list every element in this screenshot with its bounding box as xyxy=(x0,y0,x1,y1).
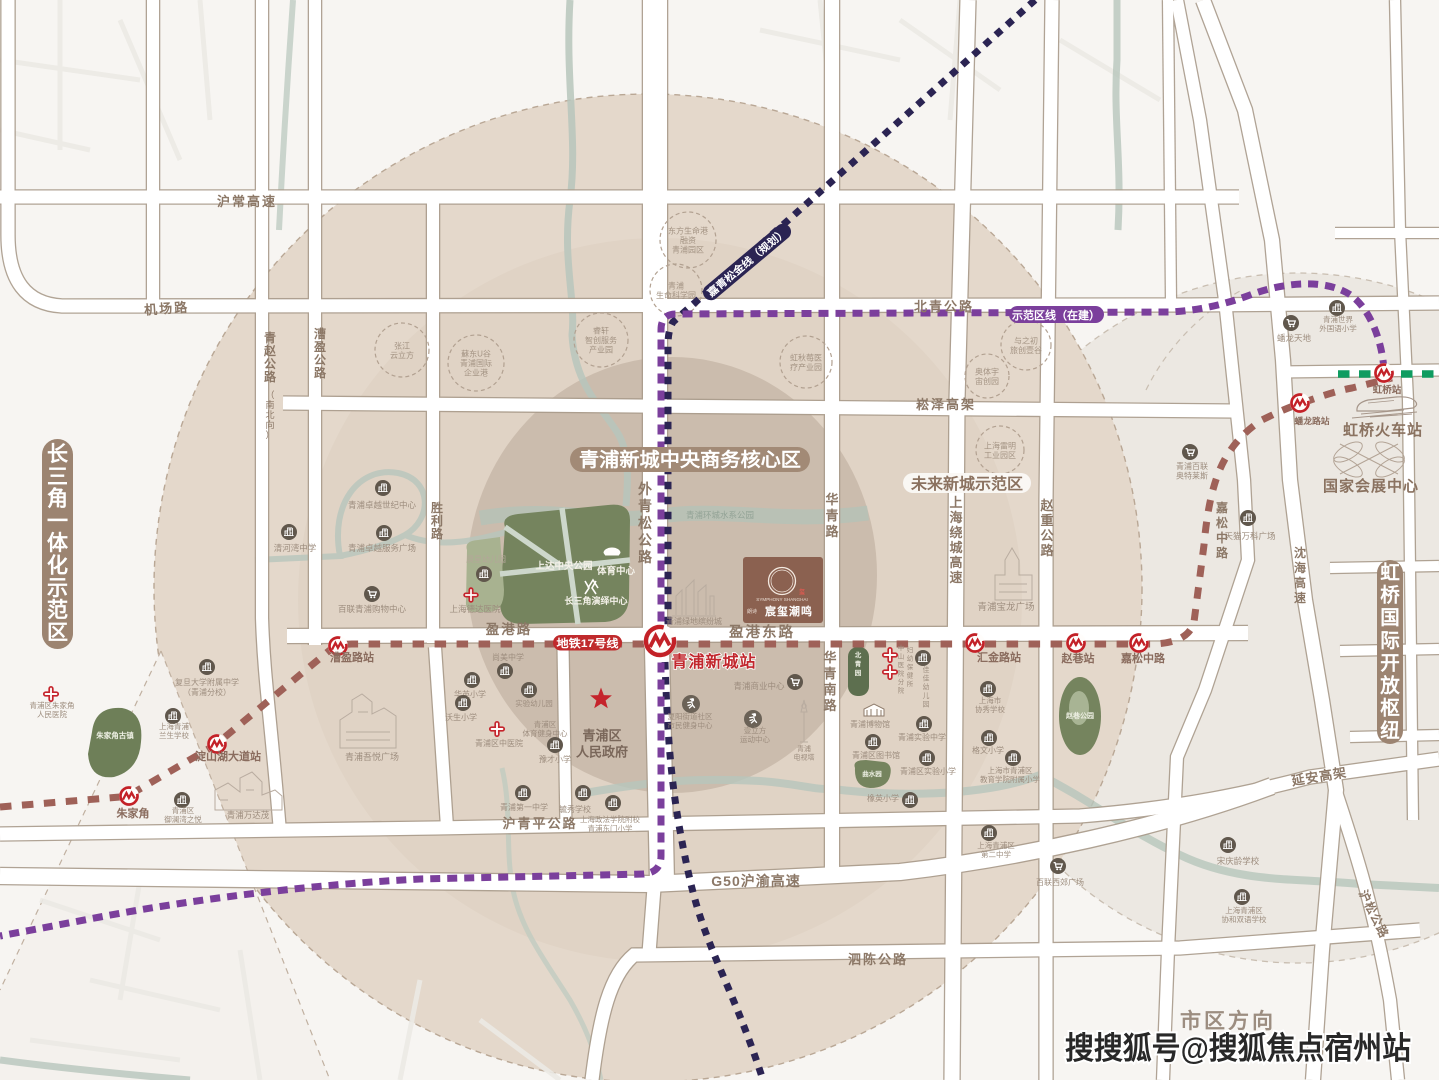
svg-text:睿轩: 睿轩 xyxy=(593,326,609,336)
svg-text:青浦区: 青浦区 xyxy=(534,719,557,729)
svg-text:青浦绿地缤纷城: 青浦绿地缤纷城 xyxy=(666,616,722,626)
svg-text:机场路: 机场路 xyxy=(144,299,190,317)
svg-text:SYMPHONY SHANGHAI: SYMPHONY SHANGHAI xyxy=(756,597,807,602)
svg-text:奥体宇: 奥体宇 xyxy=(975,366,999,376)
svg-text:青浦区: 青浦区 xyxy=(582,728,621,743)
svg-text:上海市青浦区: 上海市青浦区 xyxy=(988,765,1033,775)
svg-text:豫才小学: 豫才小学 xyxy=(539,754,571,764)
svg-text:重: 重 xyxy=(1040,513,1053,528)
svg-text:未来新城示范区: 未来新城示范区 xyxy=(910,474,1024,493)
svg-text:上达中央公园: 上达中央公园 xyxy=(535,560,592,572)
svg-text:青浦实验中学: 青浦实验中学 xyxy=(898,732,946,742)
svg-text:长: 长 xyxy=(47,443,69,466)
svg-text:御澜湾之悦: 御澜湾之悦 xyxy=(164,814,202,824)
svg-text:蟠龙天地: 蟠龙天地 xyxy=(1277,333,1312,343)
svg-text:一: 一 xyxy=(47,510,68,533)
svg-text:产业园: 产业园 xyxy=(589,345,613,355)
svg-text:青浦卓越服务广场: 青浦卓越服务广场 xyxy=(348,543,416,553)
svg-text:佳: 佳 xyxy=(923,674,930,683)
svg-text:区: 区 xyxy=(47,621,68,644)
svg-text:宸玺潮鸣: 宸玺潮鸣 xyxy=(765,604,813,618)
svg-text:青浦新城站: 青浦新城站 xyxy=(671,652,756,671)
svg-text:人民政府: 人民政府 xyxy=(576,745,628,760)
svg-text:体: 体 xyxy=(47,532,69,555)
svg-text:路: 路 xyxy=(431,526,444,541)
svg-text:青浦新城中央商务核心区: 青浦新城中央商务核心区 xyxy=(579,448,801,471)
svg-text:示: 示 xyxy=(47,577,68,600)
svg-text:体育健身中心: 体育健身中心 xyxy=(523,728,568,738)
svg-text:上海青浦区: 上海青浦区 xyxy=(1225,905,1263,915)
svg-text:外国语小学: 外国语小学 xyxy=(1319,323,1357,333)
svg-text:幼: 幼 xyxy=(907,654,914,663)
svg-text:疗产业园: 疗产业园 xyxy=(790,362,822,372)
svg-text:赵: 赵 xyxy=(1039,498,1054,513)
svg-text:佳: 佳 xyxy=(923,665,930,674)
svg-text:）: ） xyxy=(265,430,274,440)
svg-text:市区方向: 市区方向 xyxy=(1180,1009,1276,1033)
svg-text:盈: 盈 xyxy=(313,340,326,354)
svg-text:云立方: 云立方 xyxy=(390,350,414,360)
svg-text:保: 保 xyxy=(907,662,914,671)
svg-text:北青公路: 北青公路 xyxy=(914,299,974,314)
svg-text:协秀学校: 协秀学校 xyxy=(975,704,1005,714)
svg-text:路: 路 xyxy=(314,365,327,380)
svg-text:虹秋莓医: 虹秋莓医 xyxy=(790,352,822,362)
svg-text:青浦环城水系公园: 青浦环城水系公园 xyxy=(686,510,754,520)
svg-text:蟠龙路站: 蟠龙路站 xyxy=(1294,415,1329,426)
svg-text:橡英小学: 橡英小学 xyxy=(867,793,899,803)
svg-text:青浦万达茂: 青浦万达茂 xyxy=(227,810,270,820)
svg-text:工业园区: 工业园区 xyxy=(984,450,1016,460)
svg-text:玺: 玺 xyxy=(799,588,805,596)
svg-text:上海青浦区: 上海青浦区 xyxy=(977,840,1015,850)
svg-text:赵: 赵 xyxy=(263,343,277,358)
svg-text:院: 院 xyxy=(898,669,905,678)
svg-text:虹桥火车站: 虹桥火车站 xyxy=(1343,421,1423,439)
svg-text:晨星幼儿园: 晨星幼儿园 xyxy=(466,554,506,564)
svg-text:天猫万科广场: 天猫万科广场 xyxy=(1224,531,1275,541)
svg-text:公: 公 xyxy=(264,357,276,371)
svg-text:公: 公 xyxy=(638,532,652,548)
svg-text:纽: 纽 xyxy=(1380,719,1400,742)
svg-text:地铁17号线: 地铁17号线 xyxy=(557,636,619,650)
svg-text:张江: 张江 xyxy=(394,341,410,350)
svg-text:生命科学园: 生命科学园 xyxy=(656,290,696,300)
svg-text:青: 青 xyxy=(638,498,652,514)
svg-text:幼: 幼 xyxy=(923,682,930,691)
svg-text:儿: 儿 xyxy=(923,692,930,700)
svg-text:青浦区实验小学: 青浦区实验小学 xyxy=(900,766,956,776)
svg-text:南: 南 xyxy=(823,682,836,697)
svg-text:漕盈路站: 漕盈路站 xyxy=(330,650,374,664)
svg-text:健: 健 xyxy=(907,671,914,680)
svg-text:蘇东U谷: 蘇东U谷 xyxy=(461,349,491,359)
svg-text:城: 城 xyxy=(949,540,962,555)
svg-text:路: 路 xyxy=(823,698,837,713)
svg-text:化: 化 xyxy=(47,554,68,578)
svg-text:路: 路 xyxy=(638,549,653,565)
svg-text:宙创园: 宙创园 xyxy=(975,376,999,386)
svg-text:海: 海 xyxy=(949,510,962,525)
svg-text:虹桥站: 虹桥站 xyxy=(1373,384,1402,396)
svg-text:北: 北 xyxy=(265,410,274,420)
svg-text:上海雷明: 上海雷明 xyxy=(984,440,1016,450)
svg-text:青浦吾悦广场: 青浦吾悦广场 xyxy=(345,751,399,762)
svg-text:分: 分 xyxy=(898,677,905,686)
svg-text:枢: 枢 xyxy=(1380,698,1400,720)
svg-text:搜搜狐号@搜狐焦点宿州站: 搜搜狐号@搜狐焦点宿州站 xyxy=(1065,1031,1411,1066)
svg-text:百联青浦购物中心: 百联青浦购物中心 xyxy=(338,604,407,614)
svg-text:漕: 漕 xyxy=(314,326,326,341)
svg-text:青浦第一中学: 青浦第一中学 xyxy=(500,802,548,812)
svg-text:崧泽高架: 崧泽高架 xyxy=(916,397,976,412)
svg-text:园: 园 xyxy=(855,668,862,677)
svg-text:海: 海 xyxy=(1294,560,1306,575)
svg-text:G50沪渝高速: G50沪渝高速 xyxy=(711,873,800,889)
svg-text:夏阳街道社区: 夏阳街道社区 xyxy=(668,711,713,721)
svg-text:体育中心: 体育中心 xyxy=(597,565,636,577)
svg-text:青: 青 xyxy=(855,659,862,668)
svg-text:上: 上 xyxy=(949,495,962,510)
svg-text:青浦区朱家角: 青浦区朱家角 xyxy=(30,700,75,710)
svg-text:淀山湖大道站: 淀山湖大道站 xyxy=(195,749,261,763)
svg-text:毓秀学校: 毓秀学校 xyxy=(559,804,591,814)
svg-text:实验幼儿园: 实验幼儿园 xyxy=(515,698,553,708)
svg-text:上海政法学院附校: 上海政法学院附校 xyxy=(580,814,640,824)
svg-text:沈: 沈 xyxy=(1294,545,1306,560)
svg-text:（青浦分校）: （青浦分校） xyxy=(183,687,231,697)
svg-text:沪常高速: 沪常高速 xyxy=(217,194,277,209)
svg-text:第二中学: 第二中学 xyxy=(981,849,1011,859)
svg-text:上海市: 上海市 xyxy=(979,695,1002,705)
svg-text:绕: 绕 xyxy=(949,525,962,540)
svg-text:路: 路 xyxy=(1216,545,1229,560)
svg-text:青: 青 xyxy=(825,508,838,523)
svg-text:青浦卓越世纪中心: 青浦卓越世纪中心 xyxy=(348,500,417,510)
svg-text:青浦: 青浦 xyxy=(797,744,811,753)
svg-text:放: 放 xyxy=(1379,674,1400,697)
svg-text:青浦园区: 青浦园区 xyxy=(672,245,704,255)
svg-text:路: 路 xyxy=(825,524,839,539)
svg-text:智创服务: 智创服务 xyxy=(585,335,617,345)
svg-text:三: 三 xyxy=(47,465,68,488)
svg-text:（: （ xyxy=(265,390,274,400)
svg-text:曲水园: 曲水园 xyxy=(862,769,882,778)
svg-text:赵巷站: 赵巷站 xyxy=(1061,651,1095,665)
svg-text:嘉松中路: 嘉松中路 xyxy=(1120,651,1166,665)
svg-text:市民健身中心: 市民健身中心 xyxy=(668,720,713,730)
svg-text:山: 山 xyxy=(898,652,905,661)
svg-text:宋庆龄学校: 宋庆龄学校 xyxy=(1217,856,1260,866)
svg-text:青浦百联: 青浦百联 xyxy=(1176,461,1208,471)
svg-text:嘉: 嘉 xyxy=(1215,500,1228,515)
svg-text:格文小学: 格文小学 xyxy=(972,745,1004,755)
svg-text:青浦国际: 青浦国际 xyxy=(460,358,492,368)
svg-text:青: 青 xyxy=(823,666,836,681)
svg-text:高: 高 xyxy=(949,555,962,570)
svg-text:东方生命港: 东方生命港 xyxy=(668,226,708,236)
svg-text:教育学院附属小学: 教育学院附属小学 xyxy=(980,774,1040,784)
svg-text:青浦: 青浦 xyxy=(668,280,684,290)
svg-text:赵巷公园: 赵巷公园 xyxy=(1065,711,1094,720)
svg-text:利: 利 xyxy=(431,513,443,528)
svg-text:盈港路: 盈港路 xyxy=(485,621,533,637)
svg-text:旅创壹谷: 旅创壹谷 xyxy=(1010,345,1042,355)
svg-text:汇金路站: 汇金路站 xyxy=(977,650,1021,664)
svg-text:高: 高 xyxy=(1294,575,1306,590)
svg-text:中: 中 xyxy=(898,643,905,652)
svg-text:范: 范 xyxy=(47,599,68,622)
svg-text:华: 华 xyxy=(823,650,836,665)
svg-text:青浦商业中心: 青浦商业中心 xyxy=(733,681,785,691)
svg-text:向: 向 xyxy=(265,419,274,430)
svg-text:运动中心: 运动中心 xyxy=(740,734,770,744)
svg-text:开: 开 xyxy=(1380,652,1400,674)
svg-text:协和双语学校: 协和双语学校 xyxy=(1222,914,1267,924)
svg-text:青浦区: 青浦区 xyxy=(172,805,195,815)
svg-text:国家会展中心: 国家会展中心 xyxy=(1323,477,1419,495)
svg-text:融资: 融资 xyxy=(680,235,696,245)
svg-text:青浦博物馆: 青浦博物馆 xyxy=(850,719,890,729)
svg-text:华: 华 xyxy=(825,492,838,507)
svg-text:清河湾中学: 清河湾中学 xyxy=(274,543,317,553)
svg-text:朗诗: 朗诗 xyxy=(747,608,757,615)
svg-text:沪青平公路: 沪青平公路 xyxy=(502,816,577,831)
svg-text:青: 青 xyxy=(264,330,276,345)
svg-text:桥: 桥 xyxy=(1380,584,1400,607)
svg-text:南: 南 xyxy=(265,399,274,410)
svg-text:壹立方: 壹立方 xyxy=(744,725,767,735)
svg-text:盈港东路: 盈港东路 xyxy=(728,623,795,641)
svg-text:奥特莱斯: 奥特莱斯 xyxy=(1176,471,1208,481)
svg-text:上海青浦: 上海青浦 xyxy=(159,721,189,731)
svg-text:企业港: 企业港 xyxy=(464,368,488,378)
svg-text:泗陈公路: 泗陈公路 xyxy=(848,952,908,967)
svg-text:虹: 虹 xyxy=(1380,561,1400,584)
svg-text:角: 角 xyxy=(47,487,68,511)
svg-text:复旦大学附属中学: 复旦大学附属中学 xyxy=(175,677,239,687)
svg-text:公: 公 xyxy=(314,353,326,367)
svg-text:松: 松 xyxy=(1216,515,1228,530)
svg-text:医: 医 xyxy=(898,661,905,669)
svg-text:兰生学校: 兰生学校 xyxy=(159,730,189,740)
svg-text:速: 速 xyxy=(1294,590,1306,605)
svg-text:北: 北 xyxy=(855,650,862,659)
svg-text:际: 际 xyxy=(1380,630,1400,652)
svg-text:青浦宝龙广场: 青浦宝龙广场 xyxy=(977,601,1034,613)
svg-text:沃生小学: 沃生小学 xyxy=(445,712,477,722)
svg-text:路: 路 xyxy=(264,369,277,384)
svg-text:青浦世界: 青浦世界 xyxy=(1323,314,1353,324)
svg-text:长三角演绎中心: 长三角演绎中心 xyxy=(564,595,627,606)
svg-text:路: 路 xyxy=(1040,543,1054,558)
svg-text:松: 松 xyxy=(638,515,652,531)
svg-text:上海德达医院: 上海德达医院 xyxy=(449,604,501,614)
svg-text:朱家角古镇: 朱家角古镇 xyxy=(96,730,134,740)
svg-text:青浦区图书馆: 青浦区图书馆 xyxy=(852,750,900,760)
svg-text:国: 国 xyxy=(1380,607,1400,629)
svg-text:速: 速 xyxy=(949,570,962,585)
svg-text:电视塔: 电视塔 xyxy=(794,753,815,762)
svg-text:院: 院 xyxy=(898,686,905,695)
svg-text:尚美中学: 尚美中学 xyxy=(492,652,524,662)
svg-text:青浦东门小学: 青浦东门小学 xyxy=(588,823,633,833)
svg-text:公: 公 xyxy=(1040,528,1053,543)
svg-text:人民医院: 人民医院 xyxy=(37,709,67,719)
svg-text:青浦区中医院: 青浦区中医院 xyxy=(475,738,523,748)
svg-text:胜: 胜 xyxy=(431,500,443,515)
svg-text:示范区线（在建）: 示范区线（在建） xyxy=(1011,308,1100,322)
svg-text:妇: 妇 xyxy=(907,645,914,654)
svg-text:与之初: 与之初 xyxy=(1014,335,1038,345)
svg-text:所: 所 xyxy=(907,679,914,688)
svg-text:百联西郊广场: 百联西郊广场 xyxy=(1036,877,1084,887)
svg-text:园: 园 xyxy=(923,700,930,708)
svg-text:朱家角: 朱家角 xyxy=(116,806,150,820)
svg-text:外: 外 xyxy=(638,481,652,497)
